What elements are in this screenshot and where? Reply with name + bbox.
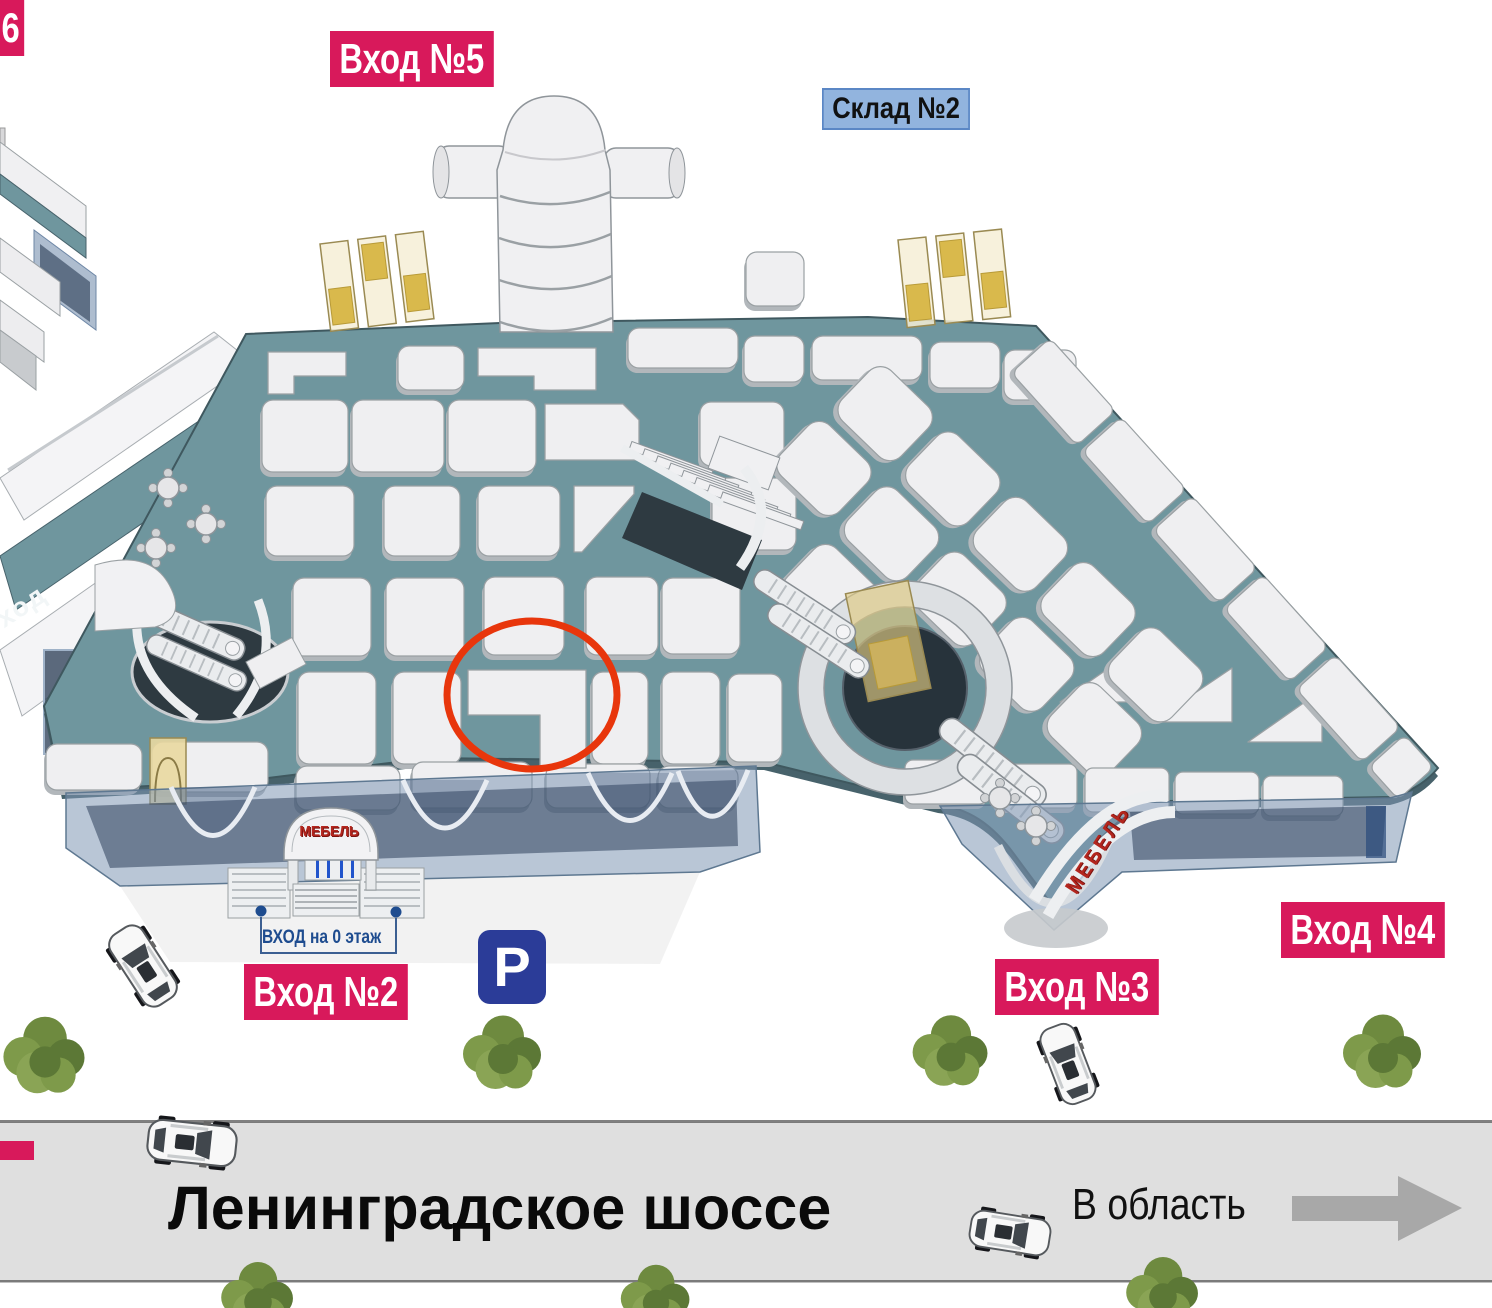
entrance2-label: Вход №2: [244, 964, 408, 1020]
entrance4-label: Вход №4: [1281, 902, 1445, 958]
ground-floor-entrance-label: ВХОД на 0 этаж: [262, 928, 377, 947]
parking-sign: P: [478, 930, 546, 1004]
mall-map: 6 Вход №5 Склад №2 ВХОД на 0 этаж Вход №…: [0, 0, 1492, 1308]
entrance6-label: 6: [0, 0, 24, 56]
entrance3-label: Вход №3: [995, 959, 1159, 1015]
road-name: Ленинградское шоссе: [168, 1178, 831, 1239]
mebel-sign-entrance2: МЕБЕЛЬ: [296, 824, 362, 839]
road-pink-marker: [0, 1141, 34, 1160]
elevator-towers: [320, 229, 1011, 331]
entrance5-label: Вход №5: [330, 31, 494, 87]
parking-icon: P: [493, 939, 530, 995]
car: [1033, 1019, 1102, 1109]
rooftop-tube: [433, 96, 685, 332]
annex-building: [0, 128, 96, 390]
road-direction: В область: [1072, 1183, 1246, 1227]
car: [146, 1114, 239, 1171]
mall-illustration: [0, 0, 1492, 1308]
warehouse2-label: Склад №2: [822, 88, 970, 130]
